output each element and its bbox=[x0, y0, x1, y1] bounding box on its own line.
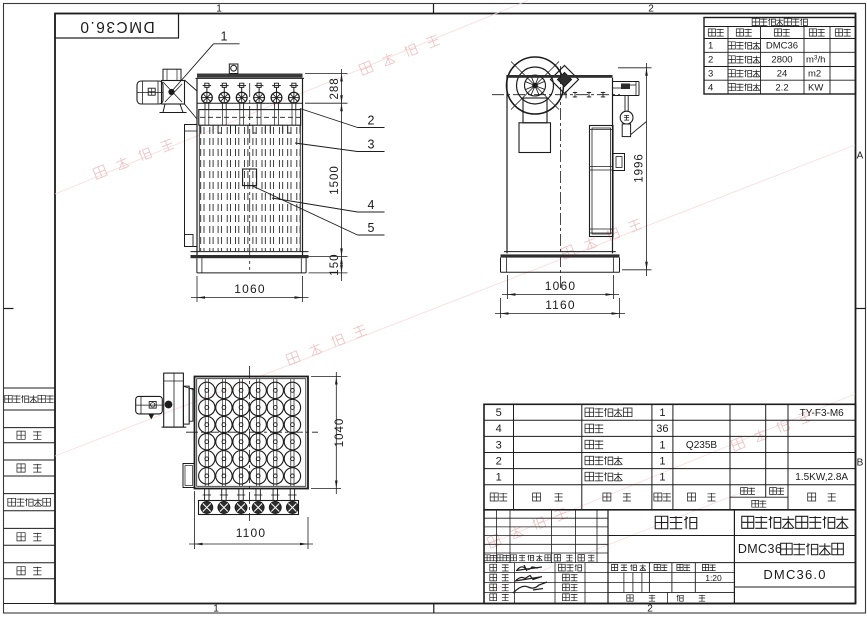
svg-text:DMC36: DMC36 bbox=[766, 41, 798, 52]
svg-text:1996: 1996 bbox=[634, 153, 646, 183]
svg-text:2: 2 bbox=[496, 455, 502, 467]
svg-text:2: 2 bbox=[708, 55, 713, 66]
svg-text:DMC36.0: DMC36.0 bbox=[763, 567, 826, 582]
svg-text:1160: 1160 bbox=[545, 298, 576, 312]
svg-text:3: 3 bbox=[496, 439, 502, 451]
svg-text:DMC36.0: DMC36.0 bbox=[79, 18, 155, 35]
svg-text:24: 24 bbox=[777, 69, 788, 80]
svg-text:1: 1 bbox=[659, 455, 665, 467]
svg-text:1:20: 1:20 bbox=[705, 573, 722, 583]
svg-text:3: 3 bbox=[708, 69, 713, 80]
svg-text:B: B bbox=[857, 458, 864, 469]
svg-text:2800: 2800 bbox=[771, 55, 792, 66]
svg-text:1: 1 bbox=[216, 4, 222, 15]
svg-text:DMC36: DMC36 bbox=[738, 542, 782, 556]
svg-text:1: 1 bbox=[659, 439, 665, 451]
svg-text:1100: 1100 bbox=[236, 526, 267, 540]
svg-text:1: 1 bbox=[221, 30, 228, 44]
svg-text:150: 150 bbox=[329, 254, 341, 276]
svg-text:1500: 1500 bbox=[329, 165, 341, 195]
svg-text:1: 1 bbox=[213, 604, 219, 615]
svg-text:A: A bbox=[857, 151, 864, 162]
svg-text:2: 2 bbox=[648, 4, 654, 15]
svg-text:TY-F3-M6: TY-F3-M6 bbox=[800, 408, 845, 419]
svg-text:5: 5 bbox=[496, 407, 502, 419]
svg-text:KW: KW bbox=[808, 82, 823, 93]
svg-text:1: 1 bbox=[659, 407, 665, 419]
svg-text:5: 5 bbox=[368, 221, 375, 235]
svg-text:2: 2 bbox=[368, 114, 375, 128]
svg-text:4: 4 bbox=[496, 423, 502, 435]
svg-text:4: 4 bbox=[708, 82, 713, 93]
svg-text:1060: 1060 bbox=[234, 282, 266, 296]
svg-text:1: 1 bbox=[708, 41, 713, 52]
svg-text:36: 36 bbox=[656, 423, 668, 435]
svg-text:1.5KW,2.8A: 1.5KW,2.8A bbox=[795, 472, 848, 483]
svg-text:1: 1 bbox=[496, 471, 502, 483]
svg-text:4: 4 bbox=[368, 198, 375, 212]
svg-text:m2: m2 bbox=[808, 69, 821, 80]
svg-text:1: 1 bbox=[659, 471, 665, 483]
svg-text:Q235B: Q235B bbox=[686, 440, 717, 451]
svg-text:2: 2 bbox=[647, 604, 653, 615]
svg-text:288: 288 bbox=[329, 77, 341, 99]
svg-text:3: 3 bbox=[368, 138, 375, 152]
svg-text:2.2: 2.2 bbox=[775, 82, 788, 93]
svg-text:1040: 1040 bbox=[334, 418, 346, 448]
svg-text:1060: 1060 bbox=[545, 279, 577, 293]
